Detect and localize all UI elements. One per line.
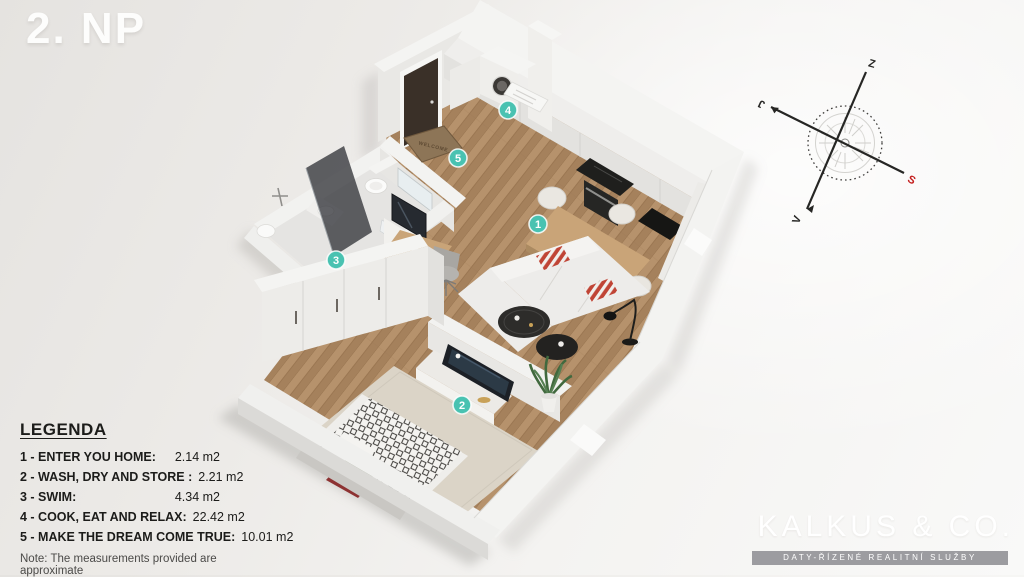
legend-row: 1 - ENTER YOU HOME: 2.14 m2	[20, 450, 220, 464]
svg-text:3: 3	[333, 255, 339, 267]
legend-note: Note: The measurements provided are appr…	[20, 553, 230, 577]
svg-text:2: 2	[459, 400, 465, 412]
brand-tagline: DATY-ŘÍZENÉ REALITNÍ SLUŽBY	[752, 551, 1008, 565]
legend-value: 22.42 m2	[193, 510, 245, 524]
shower-fixture	[272, 188, 288, 206]
marker-5: 5	[449, 149, 467, 167]
legend-row: 2 - WASH, DRY AND STORE : 2.21 m2	[20, 470, 220, 484]
coffee-table	[536, 334, 578, 360]
compass-south: J	[756, 97, 767, 110]
legend-label: 3 - SWIM:	[20, 490, 76, 504]
legend-value: 2.21 m2	[198, 470, 243, 484]
brand-logo: KALKUS & CO.	[758, 510, 1014, 544]
dining-chair	[538, 187, 566, 209]
svg-text:1: 1	[535, 219, 541, 231]
bidet	[257, 225, 275, 238]
legend-label: 1 - ENTER YOU HOME:	[20, 450, 156, 464]
compass-west: Z	[867, 57, 877, 70]
legend-row: 3 - SWIM: 4.34 m2	[20, 490, 220, 504]
legend-value: 2.14 m2	[175, 450, 220, 464]
marker-4: 4	[499, 101, 517, 119]
marker-2: 2	[453, 396, 471, 414]
dining-chair	[609, 204, 635, 224]
legend-value: 4.34 m2	[175, 490, 220, 504]
door-handle	[430, 100, 433, 103]
legend: LEGENDA 1 - ENTER YOU HOME: 2.14 m2 2 - …	[20, 420, 230, 577]
lamp-shade	[604, 312, 617, 321]
compass-east: V	[790, 214, 804, 226]
marker-1: 1	[529, 215, 547, 233]
compass-north: S	[905, 173, 917, 187]
legend-label: 4 - COOK, EAT AND RELAX:	[20, 510, 187, 524]
legend-value: 10.01 m2	[241, 530, 293, 544]
svg-text:5: 5	[455, 153, 461, 165]
marker-3: 3	[327, 251, 345, 269]
legend-row: 5 - MAKE THE DREAM COME TRUE: 10.01 m2	[20, 530, 220, 544]
legend-row: 4 - COOK, EAT AND RELAX: 22.42 m2	[20, 510, 220, 524]
svg-text:4: 4	[505, 105, 512, 117]
legend-label: 5 - MAKE THE DREAM COME TRUE:	[20, 530, 235, 544]
legend-heading: LEGENDA	[20, 420, 230, 440]
partition-wall	[528, 26, 552, 132]
coffee-table	[498, 306, 550, 338]
legend-label: 2 - WASH, DRY AND STORE :	[20, 470, 192, 484]
page-title: 2. NP	[26, 4, 146, 54]
